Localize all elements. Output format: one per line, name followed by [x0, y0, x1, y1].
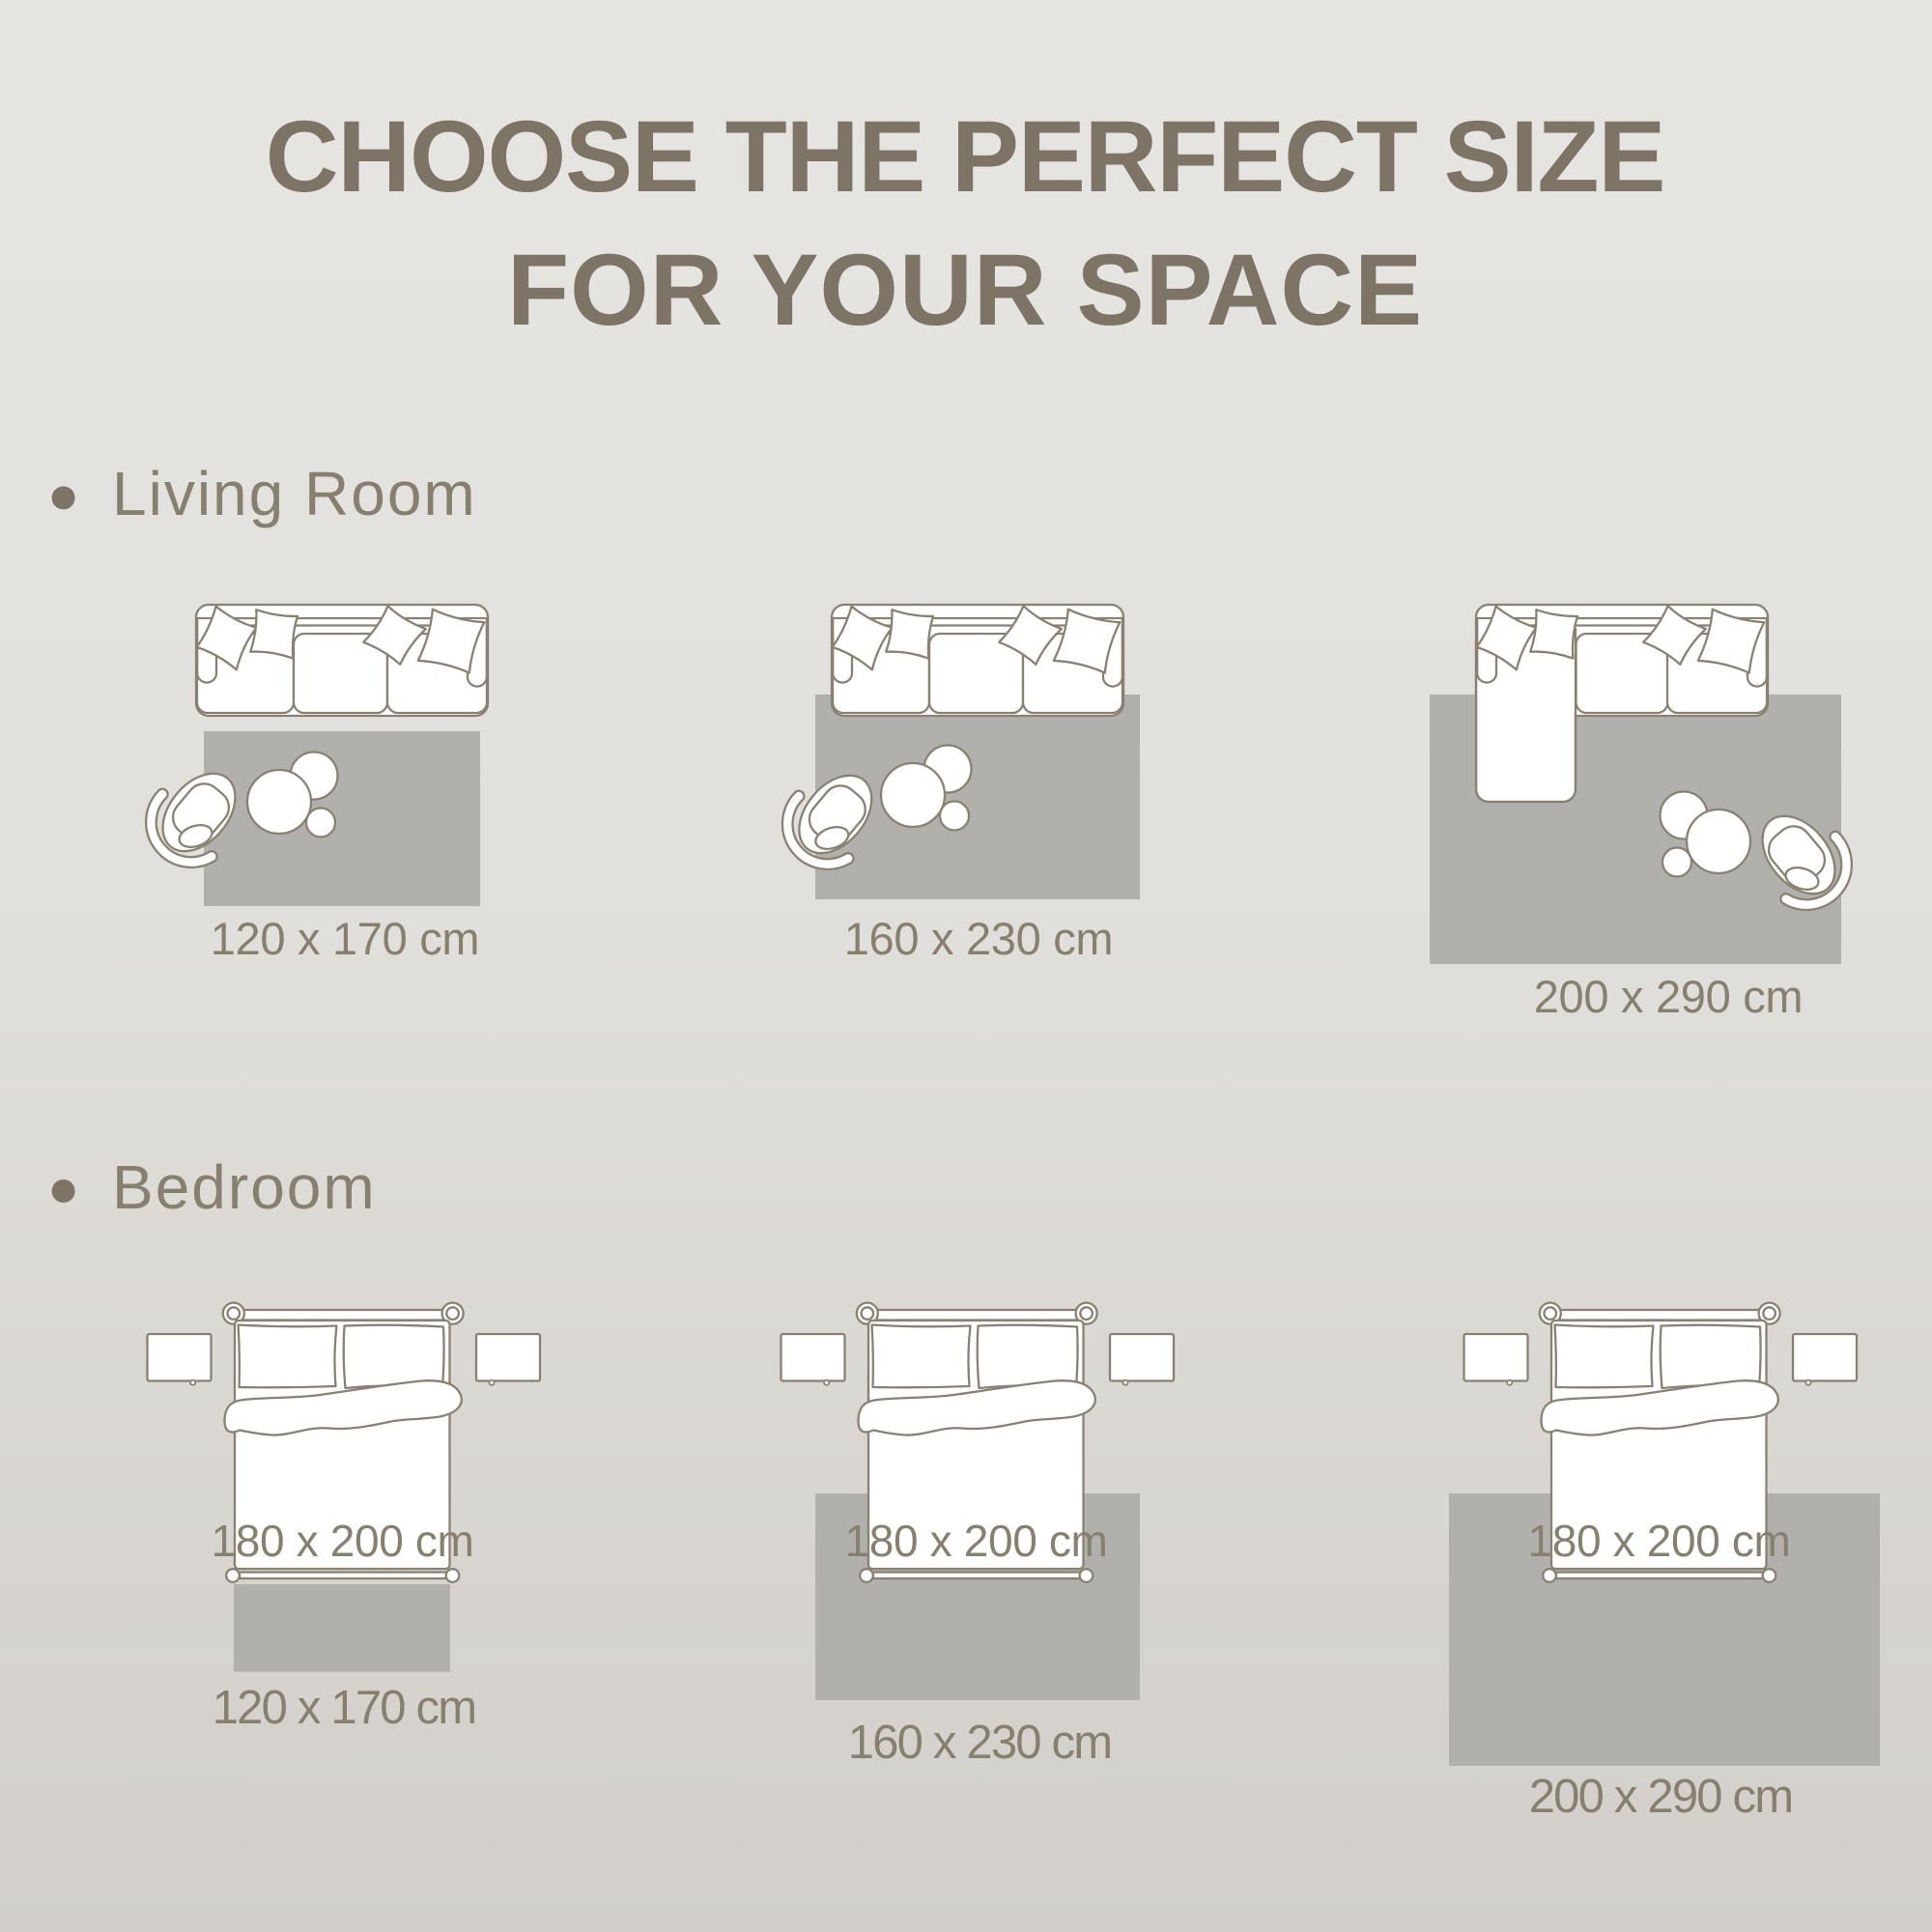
svg-text:Bedroom: Bedroom: [112, 1152, 377, 1222]
svg-text:120 x 170 cm: 120 x 170 cm: [213, 1682, 476, 1734]
svg-text:160 x 230 cm: 160 x 230 cm: [844, 913, 1114, 964]
svg-text:180 x 200 cm: 180 x 200 cm: [212, 1516, 474, 1566]
svg-text:200 x 290 cm: 200 x 290 cm: [1529, 1771, 1793, 1823]
svg-text:FOR YOUR SPACE: FOR YOUR SPACE: [507, 234, 1423, 347]
svg-text:160 x 230 cm: 160 x 230 cm: [848, 1717, 1112, 1769]
svg-text:CHOOSE THE PERFECT SIZE: CHOOSE THE PERFECT SIZE: [266, 100, 1664, 213]
svg-text:200 x 290 cm: 200 x 290 cm: [1534, 971, 1804, 1022]
svg-text:120 x 170 cm: 120 x 170 cm: [211, 913, 480, 964]
svg-text:Living Room: Living Room: [112, 459, 477, 528]
